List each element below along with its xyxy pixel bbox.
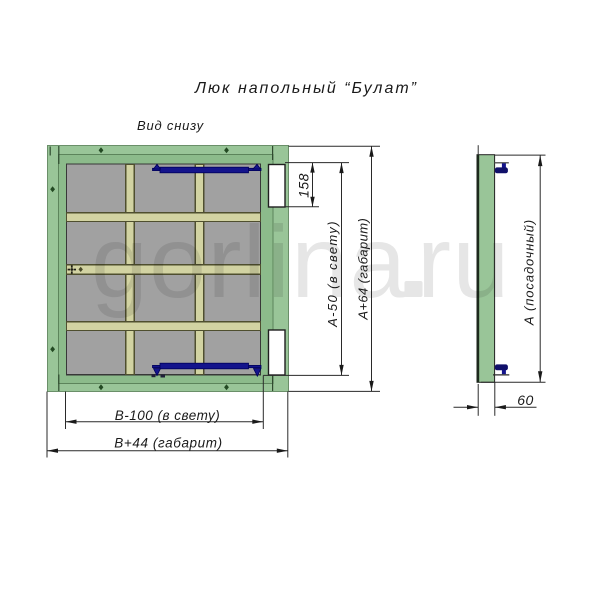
svg-text:В-100 (в свету): В-100 (в свету)	[115, 408, 221, 423]
svg-text:Люк напольный “Булат”: Люк напольный “Булат”	[194, 80, 418, 97]
svg-text:А (посадочный): А (посадочный)	[522, 219, 537, 326]
svg-text:60: 60	[517, 392, 534, 408]
svg-text:В+44 (габарит): В+44 (габарит)	[114, 436, 222, 451]
svg-text:Вид снизу: Вид снизу	[137, 118, 205, 133]
svg-text:А+64 (габарит): А+64 (габарит)	[355, 218, 370, 321]
svg-text:ru: ru	[417, 205, 511, 319]
svg-text:158: 158	[296, 173, 312, 198]
svg-text:А-50 (в свету): А-50 (в свету)	[325, 220, 340, 328]
